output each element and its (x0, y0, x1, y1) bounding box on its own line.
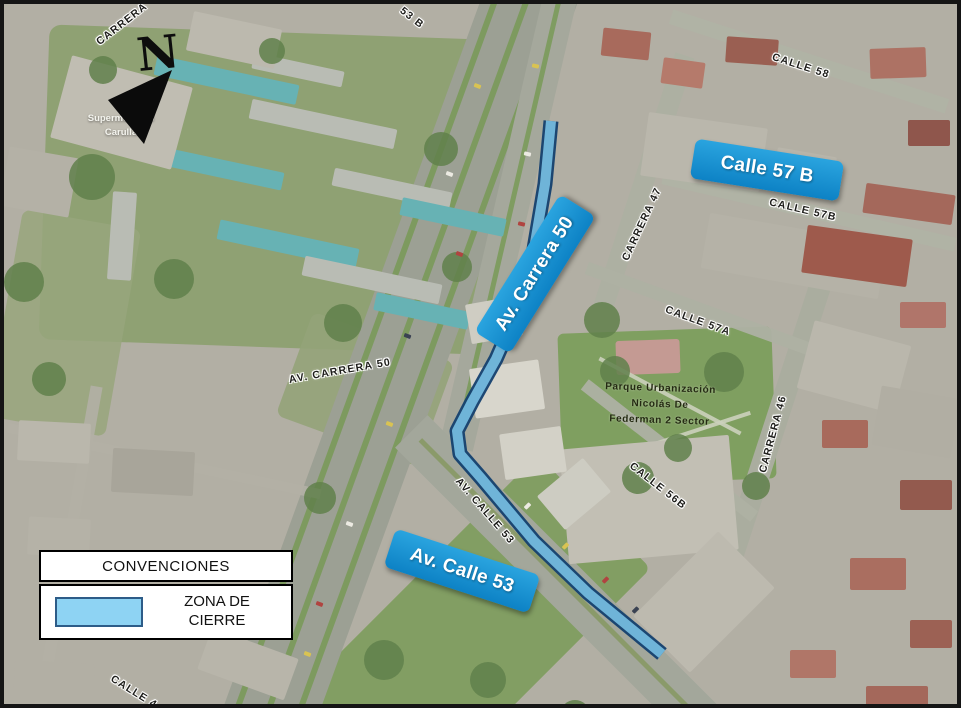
map-label-calle-58: CALLE 58 (771, 51, 832, 81)
map-label-carrera-46: CARRERA 46 (757, 394, 789, 474)
legend: CONVENCIONES ZONA DE CIERRE (39, 550, 293, 640)
legend-title: CONVENCIONES (39, 550, 293, 582)
map-label-parque-federman: Parque Urbanización Nicolás De Federman … (604, 379, 716, 431)
map-label-carrera-47: CARRERA 47 (620, 185, 665, 262)
legend-item-label: ZONA DE CIERRE (143, 593, 291, 631)
callout-calle-57b-label: Calle 57 B (719, 152, 815, 188)
map-label-av-carrera-50: AV. CARRERA 50 (288, 356, 392, 386)
map-label-calle-53b-partial: 53 B (398, 5, 427, 31)
legend-row-zona-de-cierre: ZONA DE CIERRE (39, 584, 293, 640)
map-figure: CARRERA53 BCALLE 58CALLE 57BCARRERA 47CA… (0, 0, 961, 708)
north-arrow-icon (108, 68, 174, 146)
map-label-av-calle-53: AV. CALLE 53 (453, 475, 517, 546)
map-label-calle-57a: CALLE 57A (664, 304, 733, 339)
map-label-calle-4-partial: CALLE 4 (108, 673, 159, 708)
map-label-calle-57b: CALLE 57B (768, 196, 838, 223)
legend-swatch (55, 597, 143, 627)
map-label-calle-56b: CALLE 56B (627, 460, 689, 512)
